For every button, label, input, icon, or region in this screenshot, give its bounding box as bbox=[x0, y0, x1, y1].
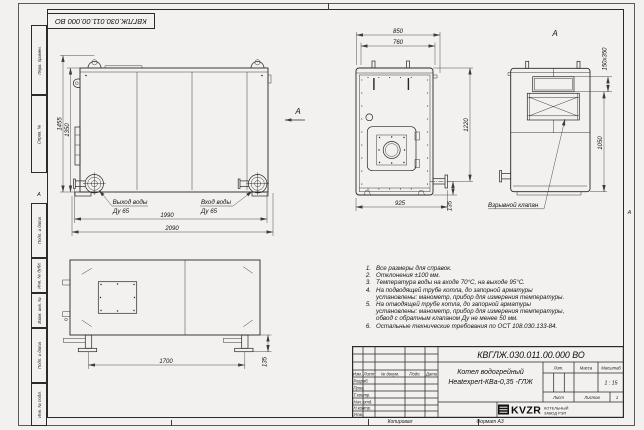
margin-label: Подп. и дата bbox=[37, 217, 42, 244]
fold-tick-top bbox=[328, 3, 329, 10]
margin-box-inv-podl: Инв. № подл. bbox=[31, 383, 47, 426]
view-arrow-letter: А bbox=[294, 107, 300, 116]
lifting-lug bbox=[577, 61, 580, 68]
view-title-letter: А bbox=[551, 29, 557, 38]
dim-height: 1220 bbox=[464, 118, 470, 132]
fold-tick-bottom bbox=[171, 420, 172, 426]
kvzr-logo: KVZR КОТЕЛЬНЫЙ ЗАВОД РЭП bbox=[498, 405, 569, 417]
lifting-lug bbox=[526, 61, 529, 68]
margin-box-inv-dubl: Инв. № дубл. bbox=[31, 258, 47, 293]
tb-product-name-1: Котел водогрейный bbox=[457, 368, 524, 376]
note-item: 6.Остальные технические требования по ОС… bbox=[361, 323, 576, 330]
tb-row-razrab: Разраб. bbox=[354, 378, 369, 383]
tb-header-data: Дата bbox=[425, 371, 438, 376]
side-nozzle bbox=[500, 171, 511, 182]
dim-foot: 135 bbox=[448, 200, 454, 211]
view-front: 850 760 bbox=[340, 18, 475, 218]
view-rear: А 150х350 1050 Взрывн bbox=[486, 18, 630, 220]
zone-letter-left: А bbox=[31, 192, 47, 198]
boiler-rear-outline bbox=[511, 68, 590, 191]
margin-box-perv-primen: Перв. примен. bbox=[31, 25, 47, 95]
top-doc-number-box: КВГЛЖ.030.011.00.000 ВО bbox=[47, 13, 155, 29]
drawing-sheet: Перв. примен. Справ. № А Подп. и дата Ин… bbox=[0, 0, 644, 430]
view-side: 1455 1350 1990 2090 Выход воды Ду 65 Вхо… bbox=[55, 38, 310, 238]
tb-row-tkontr: Т.контр. bbox=[354, 392, 371, 397]
technical-notes: 1.Все размеры для справок. 2.Отклонения … bbox=[361, 265, 576, 330]
dim-length-outer: 2090 bbox=[164, 226, 179, 232]
tb-sheets-label: Листов bbox=[583, 395, 600, 400]
top-hatch bbox=[98, 282, 136, 314]
support-leg-right bbox=[223, 335, 253, 352]
title-block: Изм. Лист № докум. Подп. Дата Разраб. Пр… bbox=[352, 346, 624, 418]
dim-foot-height: 135 bbox=[263, 356, 269, 367]
view-top: 1700 135 bbox=[58, 255, 276, 375]
water-outlet-label: Выход воды bbox=[113, 199, 148, 206]
tb-sheet-label: Лист bbox=[552, 395, 564, 400]
lifting-lug bbox=[372, 61, 375, 68]
water-inlet-dn: Ду 65 bbox=[200, 208, 218, 215]
margin-box-vzam-inv: Взам. инв. № bbox=[31, 293, 47, 328]
tb-header-izm: Изм. bbox=[353, 371, 362, 376]
tb-row-prov: Пров. bbox=[354, 385, 365, 390]
side-lug bbox=[63, 312, 70, 317]
footer-copied: Копировал bbox=[360, 419, 440, 425]
dim-bottom: 925 bbox=[395, 201, 406, 207]
dim-length-inner: 1990 bbox=[160, 213, 174, 219]
top-doc-number: КВГЛЖ.030.011.00.000 ВО bbox=[55, 17, 147, 26]
tb-row-nachotd: Нач. отд. bbox=[354, 399, 373, 404]
company-line-2: ЗАВОД РЭП bbox=[544, 411, 566, 416]
side-bracket bbox=[75, 127, 80, 165]
side-lug bbox=[73, 79, 80, 87]
side-lug bbox=[63, 280, 70, 285]
margin-label: Инв. № дубл. bbox=[37, 262, 42, 288]
dim-height-outer: 1455 bbox=[58, 117, 64, 131]
tb-row-utv: Утв. bbox=[354, 412, 364, 417]
lug-hole bbox=[92, 60, 97, 65]
dim-top-outer: 850 bbox=[393, 29, 404, 35]
explosion-valve-label: Взрывной клапан bbox=[488, 202, 539, 209]
lug-hole bbox=[255, 60, 260, 65]
margin-label: Перв. примен. bbox=[37, 46, 42, 75]
hatch-bolts bbox=[100, 283, 135, 311]
dim-flue: 150х350 bbox=[603, 47, 609, 71]
dim-height-inner: 1350 bbox=[65, 123, 71, 137]
note-item: 2.Отклонения ±100 мм. bbox=[361, 272, 576, 279]
tb-header-list: Лист bbox=[363, 371, 375, 376]
kvzr-logo-text: KVZR bbox=[511, 405, 541, 417]
margin-label: Справ. № bbox=[37, 124, 42, 144]
dim-top-inner: 760 bbox=[393, 40, 404, 46]
foot-left bbox=[75, 192, 91, 196]
margin-box-podp-data-2: Подп. и дата bbox=[31, 328, 47, 383]
base-skid bbox=[517, 192, 581, 195]
dim-feet-span: 1700 bbox=[159, 359, 173, 365]
lifting-lug bbox=[407, 61, 410, 68]
tb-scale-value: 1 : 15 bbox=[605, 381, 618, 387]
tb-lit-label: Лит. bbox=[553, 366, 564, 371]
note-item: 4.На подводящей трубе котла, до запорной… bbox=[361, 287, 576, 301]
dim-height: 1050 bbox=[598, 136, 604, 150]
tb-row-nkontr: Н.контр. bbox=[354, 405, 372, 410]
margin-box-podp-data-1: Подп. и дата bbox=[31, 203, 47, 258]
margin-label: Взам. инв. № bbox=[37, 297, 42, 324]
burner-plate bbox=[377, 135, 407, 165]
water-inlet-label: Вход воды bbox=[201, 199, 231, 206]
tb-header-docum: № докум. bbox=[381, 371, 399, 376]
explosion-valve bbox=[527, 93, 579, 120]
burner-plate-bolts bbox=[378, 136, 405, 163]
rear-stub bbox=[433, 75, 437, 78]
boiler-body-outline bbox=[80, 68, 268, 192]
water-outlet-dn: Ду 65 bbox=[112, 208, 130, 215]
boiler-door bbox=[367, 127, 416, 171]
inspection-hole bbox=[366, 114, 373, 121]
margin-label: Инв. № подл. bbox=[37, 391, 42, 418]
margin-box-sprav-no: Справ. № bbox=[31, 95, 47, 173]
support-leg-left bbox=[63, 335, 96, 352]
tb-header-podp: Подп. bbox=[409, 371, 420, 376]
burner-opening bbox=[383, 142, 400, 159]
rear-stub bbox=[268, 75, 271, 83]
flue-opening bbox=[533, 77, 574, 92]
tb-doc-number: КВГЛЖ.030.011.00.000 ВО bbox=[477, 350, 585, 360]
tb-mass-label: Масса bbox=[580, 366, 593, 371]
note-item: 3.Температура воды на входе 70°С, на вых… bbox=[361, 279, 576, 286]
footer-format: Формат А3 bbox=[450, 419, 530, 425]
tb-scale-label: Масштаб bbox=[601, 366, 621, 371]
margin-label: Подп. и дата bbox=[37, 342, 42, 369]
note-item: 1.Все размеры для справок. bbox=[361, 265, 576, 272]
tb-sheets-value: 1 bbox=[616, 395, 618, 400]
note-item: 5.На отводящей трубе котла, до запорной … bbox=[361, 301, 576, 323]
tb-product-name-2: Heatexpert-КВа-0,35 -ГЛЖ bbox=[448, 379, 533, 386]
